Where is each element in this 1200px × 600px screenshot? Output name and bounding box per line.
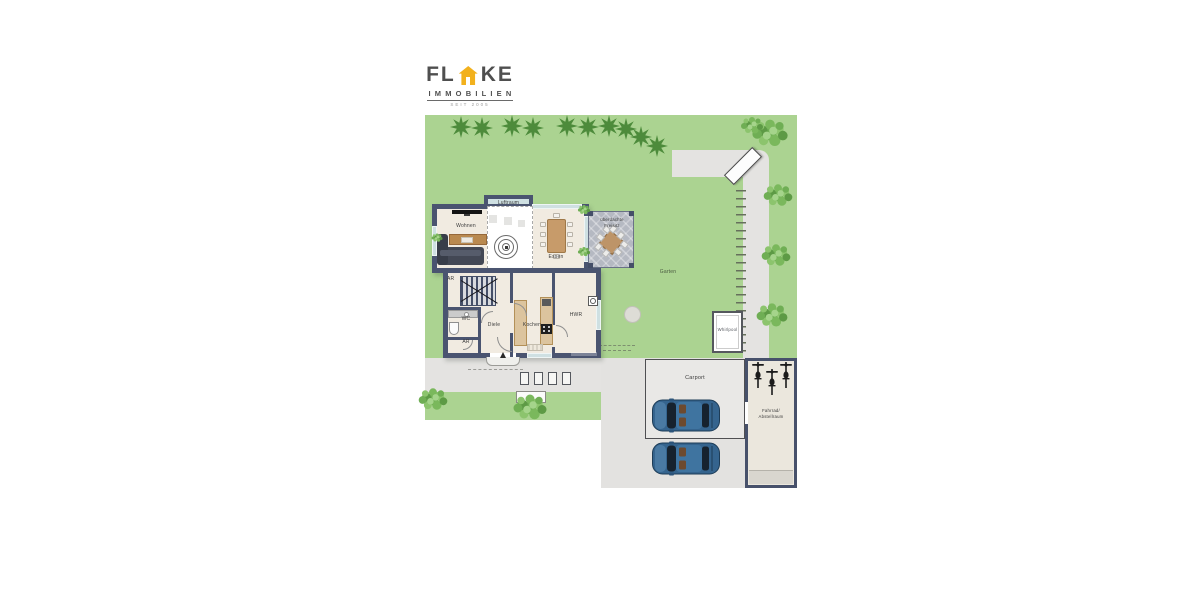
terrace-post bbox=[588, 211, 593, 216]
dining-table bbox=[547, 219, 566, 253]
carport-label: Carport bbox=[665, 375, 725, 381]
kitchen-sink-icon bbox=[542, 299, 551, 306]
brand-logo: FL KE IMMOBILIEN SEIT 2005 bbox=[424, 64, 516, 107]
house-door-icon bbox=[466, 77, 470, 85]
terrace-post bbox=[629, 263, 634, 268]
whirlpool-label: Whirlpool bbox=[712, 328, 743, 333]
bike-room-shelf bbox=[749, 470, 793, 484]
brand-subtitle: IMMOBILIEN bbox=[424, 89, 516, 98]
brand-tagline: SEIT 2005 bbox=[424, 102, 516, 107]
garden-label: Garten bbox=[648, 270, 688, 276]
bike-room-label-2: Abstellraum bbox=[747, 415, 795, 420]
ghost-furniture bbox=[518, 220, 525, 227]
brand-left: FL bbox=[426, 64, 456, 85]
garden-bed-dashes bbox=[603, 350, 631, 351]
washer-drum-icon bbox=[590, 298, 596, 304]
brand-right: KE bbox=[481, 64, 514, 85]
room-label-hwr: HWR bbox=[566, 313, 586, 319]
house-icon bbox=[459, 66, 478, 85]
room-label-wc: WC bbox=[458, 317, 474, 323]
garden-path-vertical bbox=[743, 160, 769, 358]
terrace-post bbox=[629, 211, 634, 216]
stepping-stone bbox=[624, 306, 641, 323]
room-label-diele: Diele bbox=[482, 323, 506, 329]
room-label-wohnen: Wohnen bbox=[446, 224, 486, 230]
planter-box bbox=[516, 391, 546, 403]
entrance-porch bbox=[486, 357, 520, 366]
sofa-cushions bbox=[440, 250, 481, 256]
paver bbox=[534, 372, 543, 385]
tv-stand-icon bbox=[464, 214, 470, 216]
plan-watermark bbox=[571, 352, 597, 356]
paver bbox=[520, 372, 529, 385]
brand-name: FL KE bbox=[424, 64, 516, 85]
carport bbox=[645, 359, 745, 439]
spiral-stair-center bbox=[505, 246, 508, 249]
room-label-kochen: Kochen bbox=[518, 323, 546, 329]
room-label-ar-top: AR bbox=[447, 277, 459, 283]
paver bbox=[548, 372, 557, 385]
tray bbox=[461, 237, 473, 243]
room-label-freisitz-2: Freisitz bbox=[592, 224, 632, 229]
doormat bbox=[527, 344, 543, 351]
paver bbox=[562, 372, 571, 385]
entrance-step-dashes bbox=[468, 369, 523, 370]
brand-divider bbox=[427, 100, 513, 101]
window-north-dining bbox=[532, 204, 582, 209]
bike-room-floor bbox=[748, 361, 794, 485]
ghost-furniture bbox=[504, 217, 512, 225]
toilet-icon bbox=[449, 322, 459, 335]
ghost-furniture bbox=[489, 215, 497, 223]
floor-plan-canvas: FL KE IMMOBILIEN SEIT 2005 bbox=[0, 0, 1200, 600]
garden-bed-dashes bbox=[599, 345, 635, 346]
bike-storage-room bbox=[745, 358, 797, 488]
entrance-arrow-icon bbox=[500, 352, 506, 358]
room-label-essen: Essen bbox=[536, 255, 576, 261]
room-label-luftraum: Luftraum bbox=[486, 201, 531, 207]
room-label-ar-bottom: AR bbox=[458, 340, 474, 346]
window-south-kitchen bbox=[527, 353, 552, 358]
